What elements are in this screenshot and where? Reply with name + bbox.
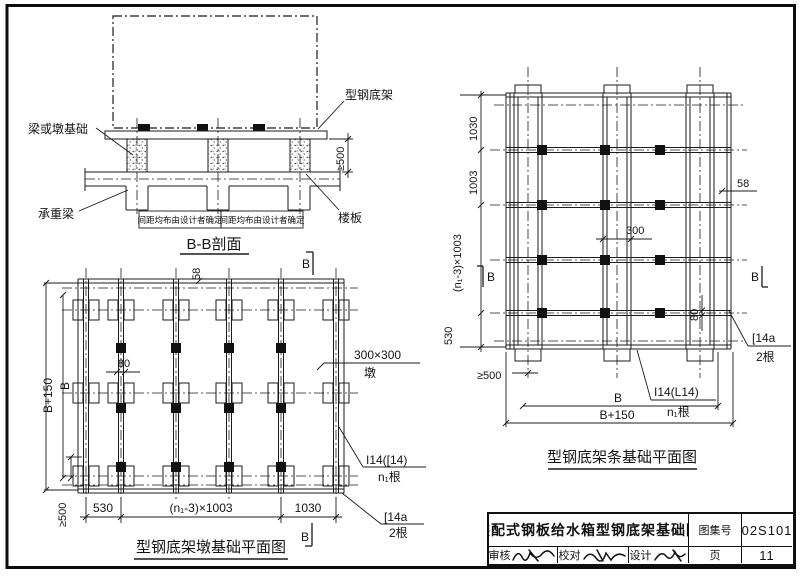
section-mark-b-left: B bbox=[487, 270, 495, 284]
dim-b150: B+150 bbox=[41, 378, 55, 413]
dim-530: 530 bbox=[93, 501, 113, 515]
page-number: 11 bbox=[741, 546, 792, 563]
dim-clearance-500: ≥500 bbox=[335, 147, 347, 171]
drawing-sheet: 梁或墩基础 型钢底架 承重梁 楼板 ≥500 间距均布由设计者确定 间距均布由设… bbox=[0, 0, 807, 579]
dim-300: 300 bbox=[626, 225, 644, 237]
label-floor-slab: 楼板 bbox=[338, 210, 362, 225]
dim-58: 58 bbox=[191, 268, 203, 280]
support-points bbox=[116, 343, 286, 472]
atlas-number-label: 图集号 bbox=[688, 514, 741, 546]
dim-58: 58 bbox=[737, 178, 749, 190]
label-steel-base-frame: 型钢底架 bbox=[345, 87, 393, 102]
atlas-number-value: 02S101 bbox=[741, 514, 792, 546]
page-label: 页 bbox=[688, 546, 741, 563]
dim-80: 80 bbox=[118, 358, 130, 370]
tank-outline bbox=[113, 16, 317, 128]
dim-clearance: ≥500 bbox=[477, 370, 501, 382]
label-channel: [14a bbox=[752, 331, 776, 345]
strip-support-points bbox=[537, 145, 665, 318]
section-title: B-B剖面 bbox=[186, 236, 241, 253]
drawing-title: 装配式钢板给水箱型钢底架基础图 bbox=[489, 514, 688, 546]
pier-hatched bbox=[127, 139, 310, 172]
strip-small-dims bbox=[512, 188, 757, 376]
section-mark-b-top: B bbox=[302, 257, 310, 271]
dim-1003: 1003 bbox=[468, 171, 480, 195]
title-block: 装配式钢板给水箱型钢底架基础图 图集号 02S101 审核 校对 设计 页 11 bbox=[487, 512, 795, 566]
label-channel-count: 2根 bbox=[389, 526, 408, 540]
label-channel-count: 2根 bbox=[756, 350, 775, 364]
dim-b150: B+150 bbox=[599, 408, 634, 422]
strip-plan-title: 型钢底架条基础平面图 bbox=[547, 449, 697, 466]
checker-label: 校对 bbox=[557, 546, 581, 563]
spacing-note-left: 间距均布由设计者确定 bbox=[137, 215, 223, 225]
dim-1030: 1030 bbox=[295, 501, 322, 515]
label-pier-word: 墩 bbox=[364, 366, 376, 380]
strip-foundations bbox=[514, 85, 714, 361]
section-mark-b-right: B bbox=[751, 270, 759, 284]
checker-signature bbox=[581, 546, 628, 563]
reviewer-signature bbox=[510, 546, 557, 563]
spacing-note-right: 间距均布由设计者确定 bbox=[219, 215, 305, 225]
dim-1030: 1030 bbox=[468, 117, 480, 141]
reviewer-label: 审核 bbox=[489, 546, 510, 563]
strip-beam-centerlines bbox=[490, 150, 747, 313]
sheet-border bbox=[7, 6, 795, 568]
dim-80: 80 bbox=[689, 309, 701, 321]
strip-plan-texts: 1030 1003 (n₁-3)×1003 530 58 300 80 ≥500… bbox=[443, 117, 776, 466]
strip-section-cut-marks bbox=[477, 266, 768, 287]
designer-signature bbox=[652, 546, 688, 563]
label-i-beam-count: n₁根 bbox=[667, 405, 690, 419]
edge-channel-centerlines bbox=[62, 288, 358, 485]
strip-channel-centerlines bbox=[494, 105, 744, 341]
section-mark-b-bottom: B bbox=[301, 530, 309, 544]
drawing-canvas: 梁或墩基础 型钢底架 承重梁 楼板 ≥500 间距均布由设计者确定 间距均布由设… bbox=[0, 0, 807, 579]
dim-530: 530 bbox=[443, 327, 455, 345]
dim-n1003: (n₁-3)×1003 bbox=[169, 501, 232, 515]
label-i-beam-count: n₁根 bbox=[378, 470, 401, 484]
label-beam-or-pier-foundation: 梁或墩基础 bbox=[28, 121, 88, 136]
label-channel: [14a bbox=[384, 510, 408, 524]
label-bearing-beam: 承重梁 bbox=[38, 206, 74, 221]
dim-b: B bbox=[58, 382, 72, 390]
dim-b: B bbox=[614, 391, 622, 405]
label-i-beam: I14(L14) bbox=[654, 385, 699, 399]
steel-base-frame-plate bbox=[105, 131, 327, 139]
label-pier-size: 300×300 bbox=[354, 348, 401, 362]
strip-plan-beams bbox=[506, 148, 731, 316]
dim-n1003: (n₁-3)×1003 bbox=[452, 234, 464, 292]
i-beams bbox=[84, 279, 339, 493]
pier-plan-title: 型钢底架墩基础平面图 bbox=[136, 539, 286, 556]
dim-clearance: ≥500 bbox=[57, 503, 69, 527]
strip-centerlines bbox=[528, 67, 700, 378]
designer-label: 设计 bbox=[628, 546, 652, 563]
label-i-beam: I14([14) bbox=[366, 453, 407, 467]
